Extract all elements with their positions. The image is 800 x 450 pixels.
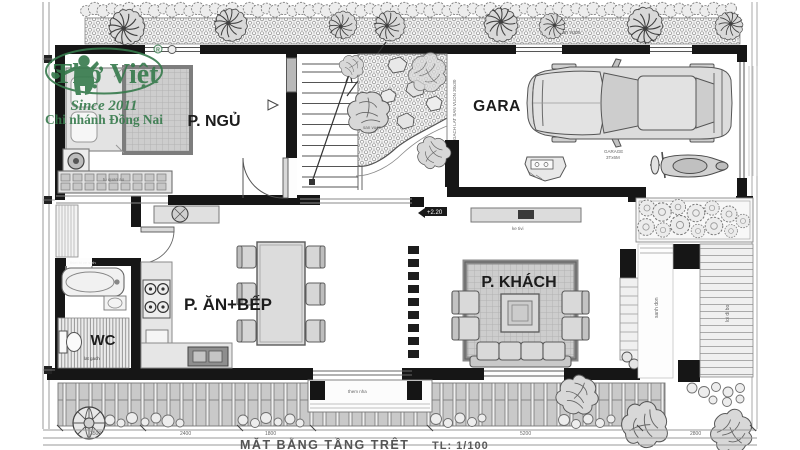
svg-text:1800: 1800 [265, 431, 276, 437]
svg-text:tu quan ao: tu quan ao [103, 177, 125, 182]
svg-text:lat gach: lat gach [84, 356, 100, 361]
svg-text:GARA: GARA [473, 98, 521, 115]
svg-text:them nha: them nha [348, 389, 367, 394]
svg-text:TL: 1/100: TL: 1/100 [432, 440, 489, 450]
svg-text:GACH LAT SAN VUON 30x30: GACH LAT SAN VUON 30x30 [452, 79, 457, 140]
svg-text:P. KHÁCH: P. KHÁCH [481, 272, 556, 291]
svg-text:ke tivi: ke tivi [512, 226, 524, 231]
svg-text:3Tx6M: 3Tx6M [606, 155, 620, 160]
svg-text:3500: 3500 [90, 431, 101, 437]
svg-text:GARAGE: GARAGE [604, 149, 623, 154]
svg-text:san vuon: san vuon [363, 125, 382, 130]
svg-text:2400: 2400 [180, 431, 191, 437]
svg-text:MẶT BẰNG TẦNG TRỆT: MẶT BẰNG TẦNG TRỆT [240, 437, 409, 450]
svg-text:P. ĂN+BẾP: P. ĂN+BẾP [184, 295, 272, 314]
svg-text:2800: 2800 [690, 431, 701, 437]
svg-text:WC: WC [91, 332, 116, 349]
svg-text:thiet bi ve sinh: thiet bi ve sinh [70, 260, 96, 265]
svg-text:Chi nhánh Đồng Nai: Chi nhánh Đồng Nai [45, 112, 163, 127]
svg-text:sanh don: sanh don [654, 297, 660, 318]
svg-text:R: R [156, 48, 160, 54]
svg-text:loi di bo: loi di bo [725, 305, 731, 322]
svg-text:P. NGỦ: P. NGỦ [187, 111, 240, 130]
svg-text:+2.20: +2.20 [427, 210, 443, 216]
svg-text:Thợ Việt: Thợ Việt [54, 59, 160, 90]
svg-text:5200: 5200 [520, 431, 531, 437]
